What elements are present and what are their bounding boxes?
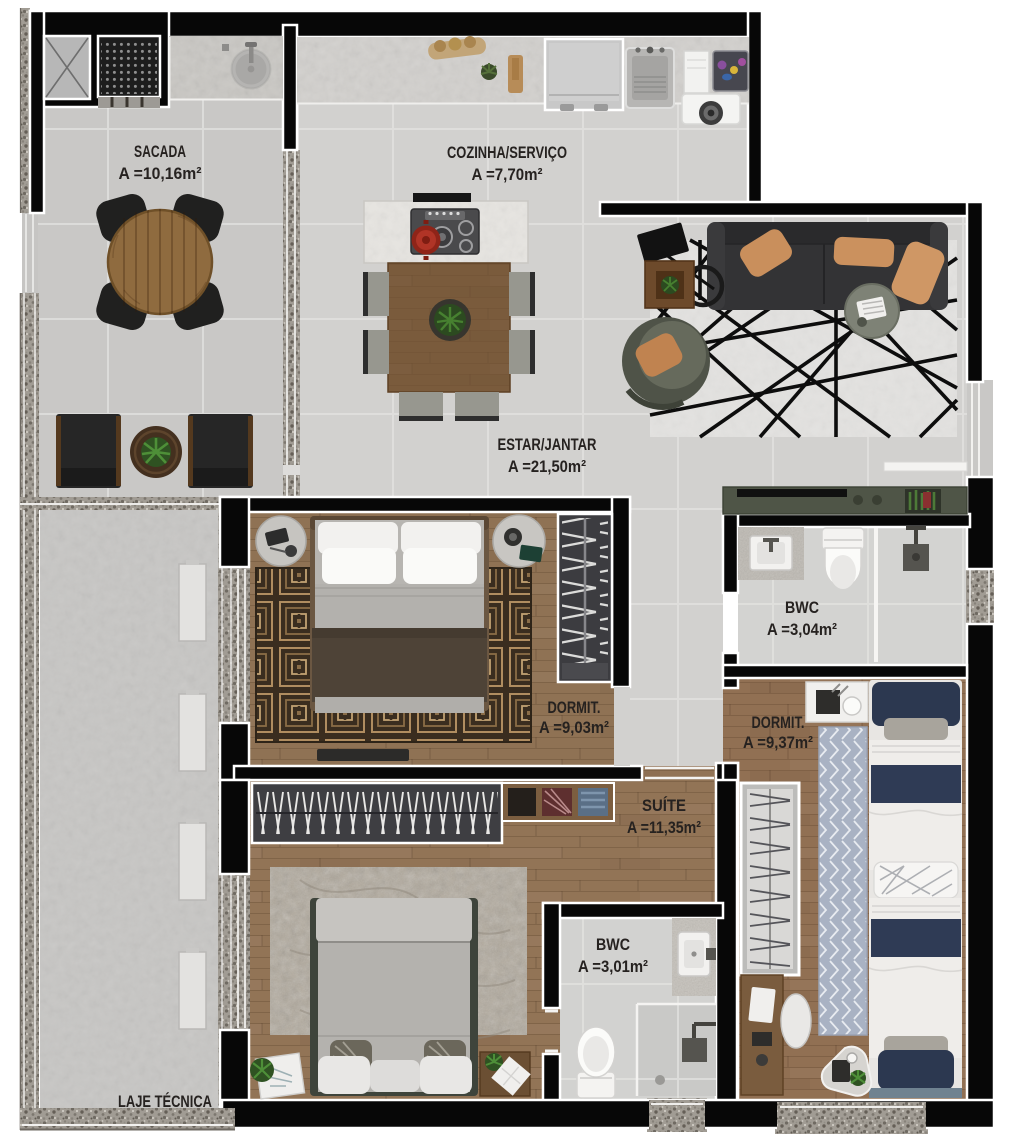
svg-text:A =9,03m²: A =9,03m² (539, 719, 609, 737)
svg-text:A =21,50m²: A =21,50m² (508, 458, 586, 476)
svg-text:A =9,37m²: A =9,37m² (743, 734, 813, 752)
svg-text:LAJE TÉCNICA: LAJE TÉCNICA (118, 1092, 212, 1111)
svg-text:A =7,70m²: A =7,70m² (472, 166, 543, 184)
svg-text:ESTAR/JANTAR: ESTAR/JANTAR (498, 436, 597, 454)
svg-text:SUÍTE: SUÍTE (642, 796, 686, 815)
svg-text:DORMIT.: DORMIT. (548, 699, 601, 717)
svg-text:SACADA: SACADA (134, 143, 186, 161)
svg-text:COZINHA/SERVIÇO: COZINHA/SERVIÇO (447, 144, 567, 162)
svg-text:A =3,04m²: A =3,04m² (767, 621, 837, 639)
svg-text:BWC: BWC (785, 599, 819, 617)
svg-text:A =3,01m²: A =3,01m² (578, 958, 648, 976)
svg-text:A =11,35m²: A =11,35m² (627, 819, 701, 837)
svg-text:DORMIT.: DORMIT. (752, 714, 805, 732)
svg-text:BWC: BWC (596, 936, 630, 954)
svg-text:A =10,16m²: A =10,16m² (119, 165, 202, 183)
